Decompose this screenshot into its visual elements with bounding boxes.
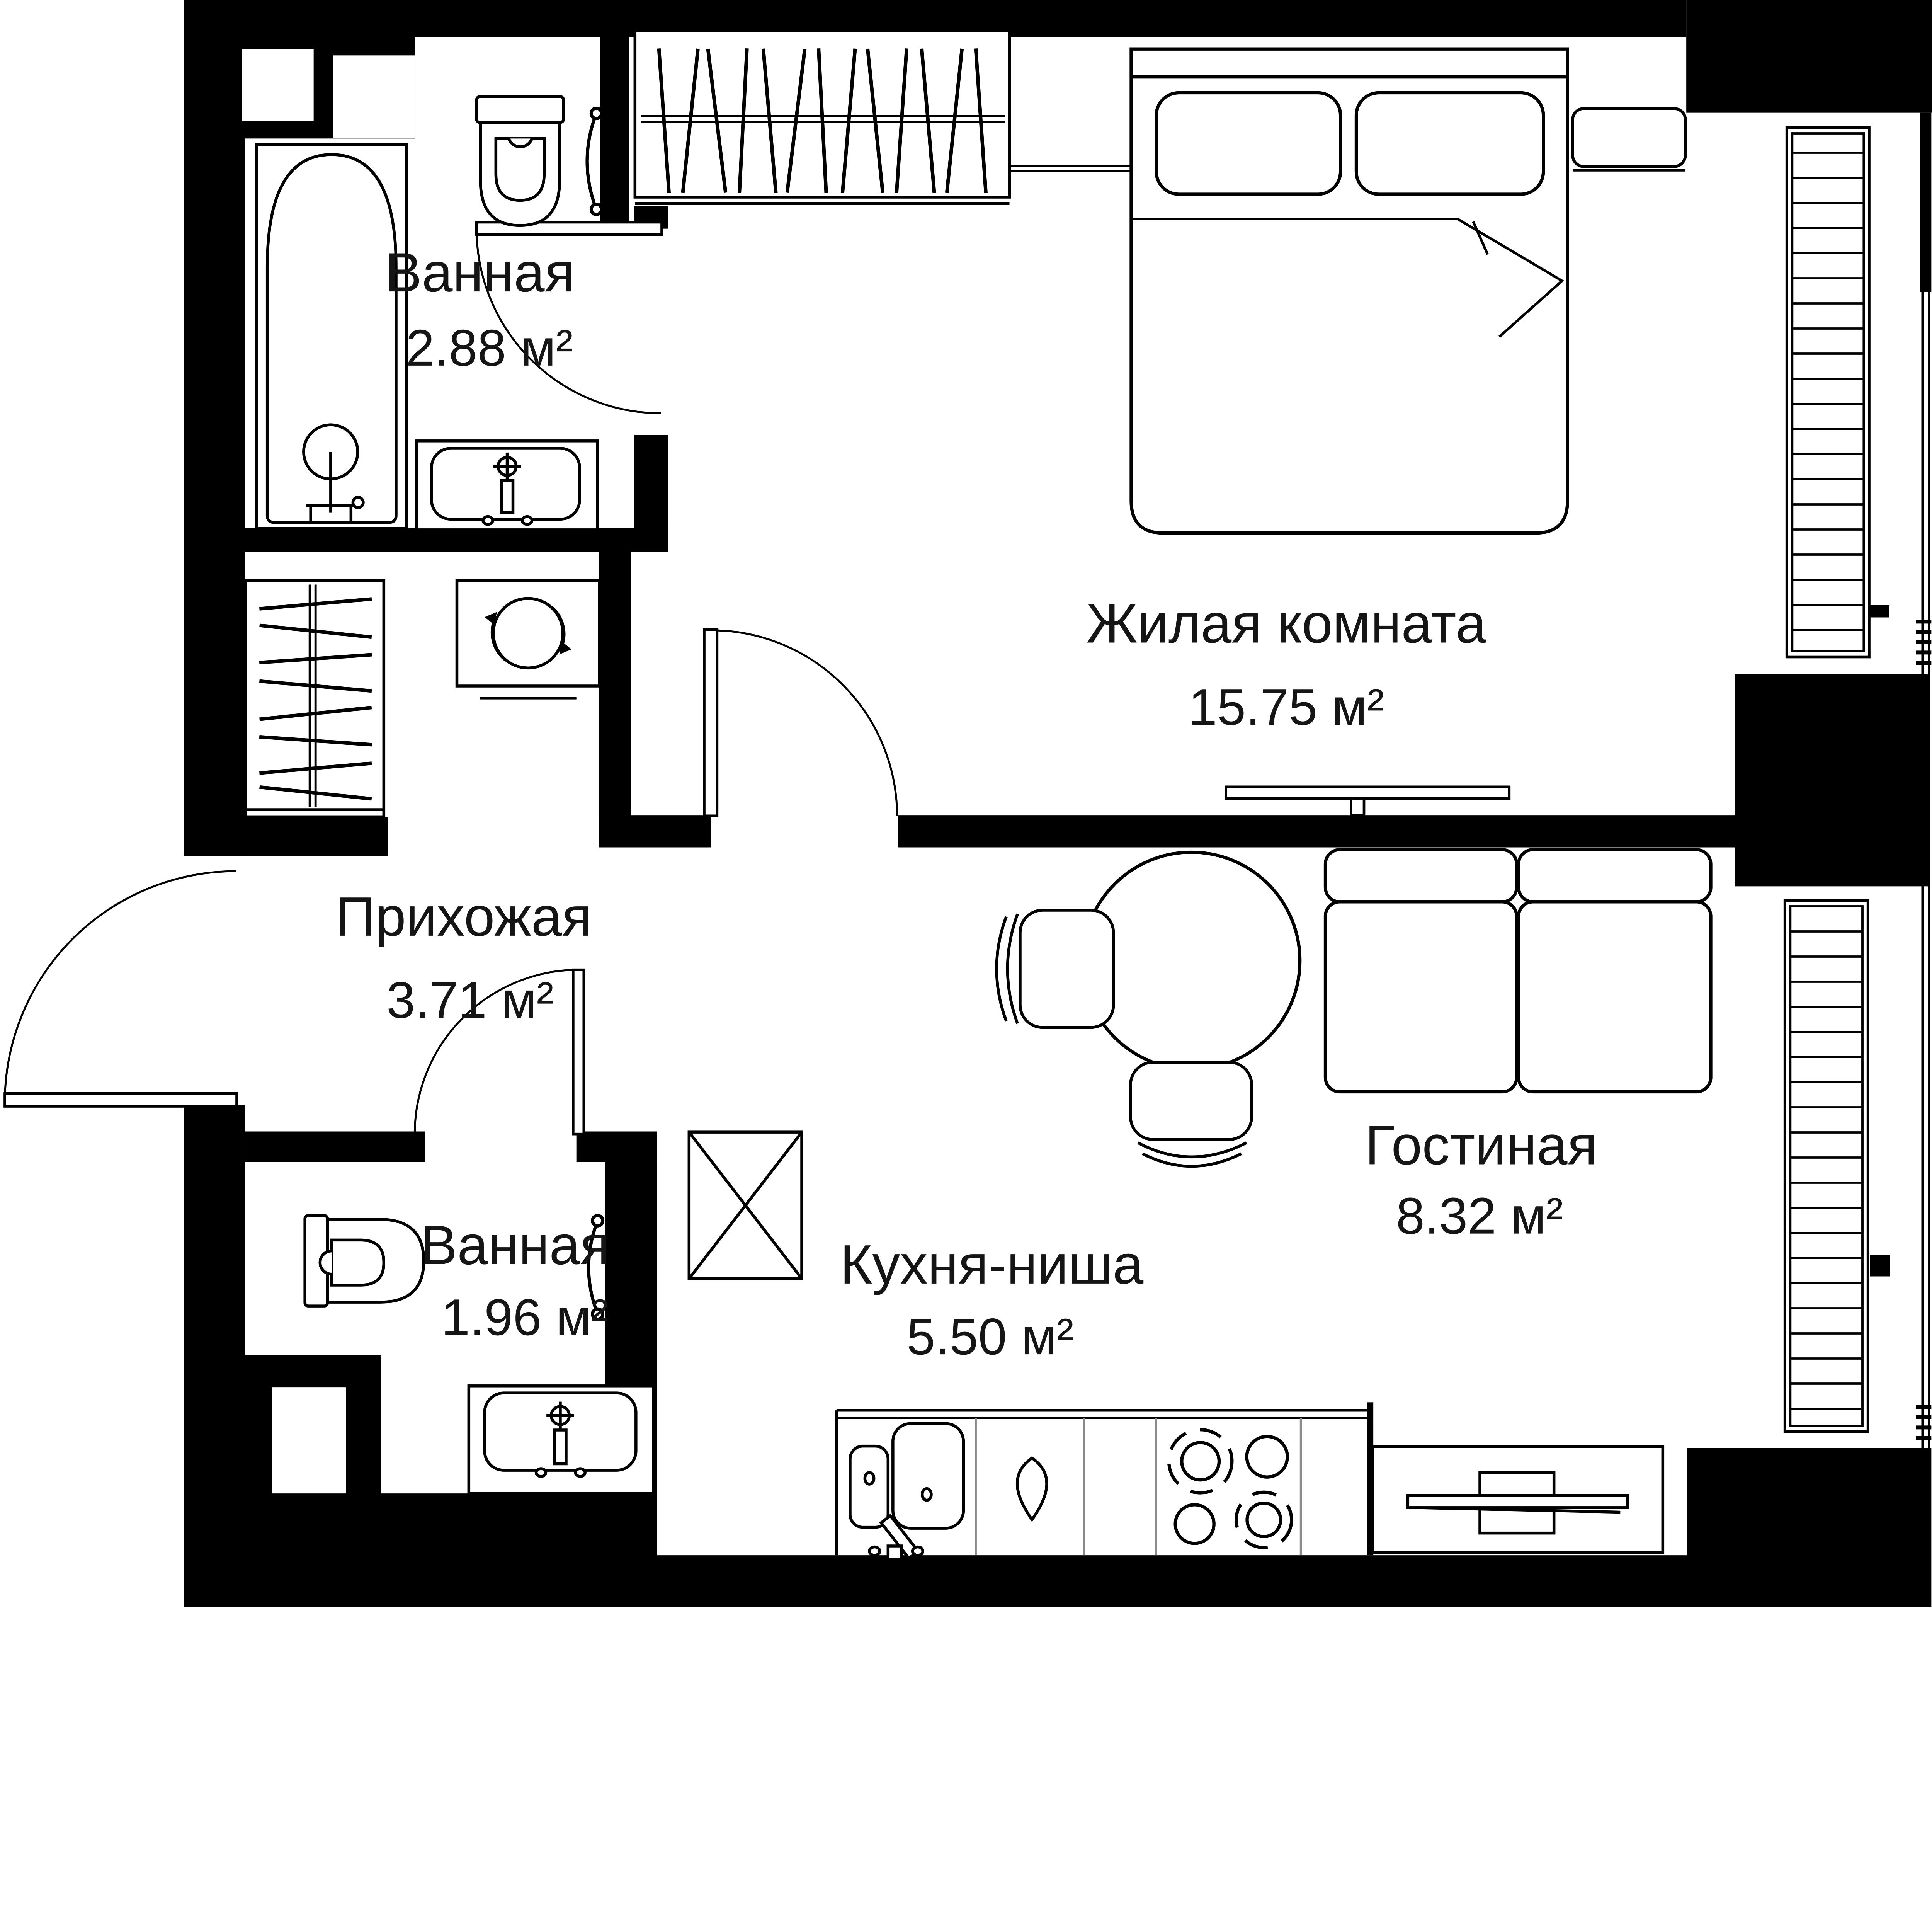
hallway-closet-hangers <box>246 581 384 817</box>
floor-plan-stage: Ванная 2.88 м² Жилая комната 15.75 м² Пр… <box>0 0 1932 1929</box>
towel-rail-top <box>587 108 602 215</box>
tv-stand <box>1351 799 1364 815</box>
wall-tv-bedroom <box>1226 787 1509 815</box>
walls <box>184 0 1932 1607</box>
sofa-two-seat <box>1325 850 1711 1092</box>
door-leaf <box>573 970 583 1134</box>
sofa-back-cushion <box>1519 850 1711 902</box>
room-area-lounge: 8.32 м² <box>1396 1187 1563 1245</box>
sofa-seat <box>1519 902 1711 1092</box>
room-name-kitchen: Кухня-ниша <box>840 1234 1144 1296</box>
sofa-back-cushion <box>1325 850 1517 902</box>
sofa-seat <box>1325 902 1517 1092</box>
duct-niche-top-left <box>242 49 314 121</box>
kitchen-double-sink <box>850 1423 963 1560</box>
pillow <box>1156 93 1340 194</box>
room-area-bathroom-top: 2.88 м² <box>406 319 573 377</box>
duct-niche-top-left-2 <box>333 55 415 138</box>
room-name-hallway: Прихожая <box>335 886 592 948</box>
door-swing-arc <box>5 871 236 1100</box>
door-lounge <box>704 630 897 816</box>
chair-bottom <box>1131 1062 1252 1166</box>
window-glazing-strip <box>1790 906 1862 1426</box>
drain <box>865 1473 874 1484</box>
duct-niche-bottom-left <box>272 1387 346 1493</box>
faucet-tap <box>554 1430 566 1464</box>
door-leaf <box>704 630 717 816</box>
window-lounge <box>1785 901 1868 1432</box>
room-name-bathroom-top: Ванная <box>385 242 575 303</box>
room-area-bedroom: 15.75 м² <box>1189 678 1384 736</box>
pillow <box>1356 93 1543 194</box>
chair-left <box>997 910 1113 1027</box>
wall-sink-top <box>417 441 597 530</box>
apartment-floor-plan: Ванная 2.88 м² Жилая комната 15.75 м² Пр… <box>0 0 1932 1607</box>
room-name-bathroom-low: Ванная <box>420 1214 610 1276</box>
wardrobe-side-ledge <box>1011 166 1134 171</box>
room-area-bathroom-low: 1.96 м² <box>441 1289 609 1346</box>
room-name-lounge: Гостиная <box>1365 1114 1598 1176</box>
room-area-hallway: 3.71 м² <box>386 971 554 1029</box>
round-table <box>1083 852 1300 1069</box>
cooktop-4-burners <box>1169 1430 1291 1548</box>
drain <box>922 1489 931 1500</box>
double-bed <box>1131 49 1567 533</box>
room-name-bedroom: Жилая комната <box>1087 592 1486 654</box>
room-area-kitchen: 5.50 м² <box>906 1308 1074 1365</box>
washing-machine <box>457 581 599 698</box>
toilet-top <box>476 97 563 225</box>
bathtub <box>257 144 406 528</box>
window-glazing-strip <box>1792 133 1864 651</box>
water-drop-symbol <box>1017 1458 1047 1519</box>
tv-cabinet <box>1372 1446 1663 1553</box>
toilet-low <box>305 1216 423 1306</box>
wardrobe-hangers <box>635 31 1009 203</box>
door-leaf <box>5 1093 237 1106</box>
refrigerator <box>689 1132 802 1279</box>
door-swing-arc <box>711 630 897 816</box>
nightstand <box>1573 109 1685 170</box>
window-bedroom <box>1787 128 1869 657</box>
wall-sink-low <box>469 1386 653 1493</box>
entrance-door <box>5 871 237 1106</box>
faucet-tap <box>502 480 513 512</box>
tv-screen <box>1408 1495 1628 1508</box>
